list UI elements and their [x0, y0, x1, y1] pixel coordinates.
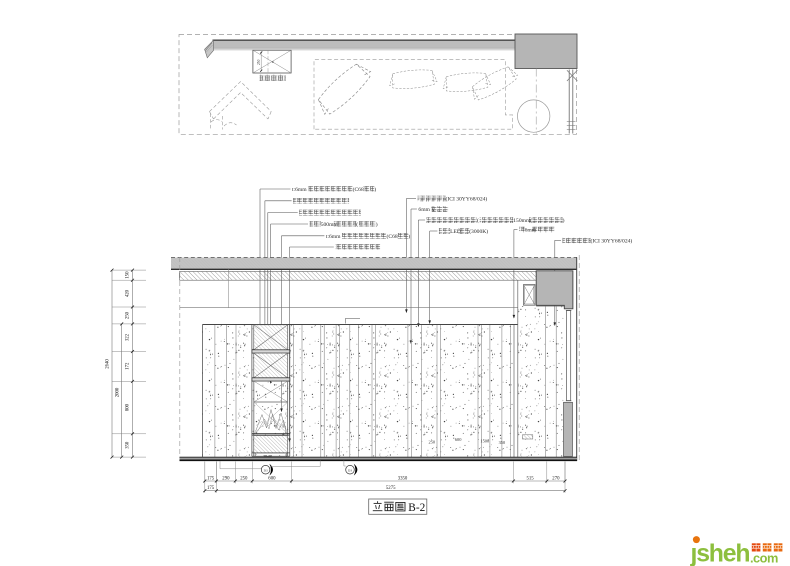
svg-text:): ) [374, 186, 376, 193]
svg-text:): ) [376, 221, 378, 228]
svg-text:t:6mm: t:6mm [326, 234, 341, 240]
svg-text:(C68: (C68 [386, 233, 397, 240]
svg-text:270: 270 [552, 476, 560, 481]
svg-text:2640: 2640 [106, 359, 111, 369]
svg-text:): ) [408, 233, 410, 240]
svg-text:B-2: B-2 [408, 502, 425, 514]
svg-text:175: 175 [207, 476, 215, 481]
svg-text:(ICI 30YY68/024): (ICI 30YY68/024) [446, 196, 488, 203]
svg-text:): ) [563, 217, 565, 224]
svg-text:2000: 2000 [115, 387, 120, 397]
svg-text:D3: D3 [264, 468, 268, 472]
svg-text:(3000K): (3000K) [469, 228, 488, 235]
svg-text:350: 350 [499, 440, 506, 445]
svg-text:322: 322 [126, 333, 131, 341]
svg-text:.com: .com [750, 550, 778, 565]
svg-text:250: 250 [257, 59, 261, 65]
svg-text:600: 600 [268, 477, 276, 482]
svg-text:290: 290 [222, 476, 230, 481]
svg-text:(: ( [477, 217, 479, 224]
svg-text:D3: D3 [348, 468, 352, 472]
svg-text:420: 420 [126, 289, 131, 297]
svg-text:(C68: (C68 [353, 186, 364, 193]
svg-text:250: 250 [429, 439, 436, 444]
svg-text:172: 172 [126, 362, 131, 370]
svg-text:5275: 5275 [386, 486, 396, 491]
svg-text:250: 250 [126, 311, 131, 319]
svg-text:600: 600 [455, 437, 462, 442]
svg-text:250: 250 [240, 476, 248, 481]
svg-text:150: 150 [126, 271, 131, 279]
svg-text:1500: 1500 [480, 438, 490, 443]
svg-text:515: 515 [526, 476, 534, 481]
svg-text:(ICI 30YY68/024): (ICI 30YY68/024) [591, 237, 633, 244]
svg-text:t:6mm: t:6mm [292, 187, 307, 193]
svg-text:(: ( [356, 221, 358, 228]
svg-text:350: 350 [126, 441, 131, 449]
svg-text:3350: 3350 [398, 476, 408, 481]
svg-text:800: 800 [126, 403, 131, 411]
svg-text:175: 175 [207, 486, 215, 491]
